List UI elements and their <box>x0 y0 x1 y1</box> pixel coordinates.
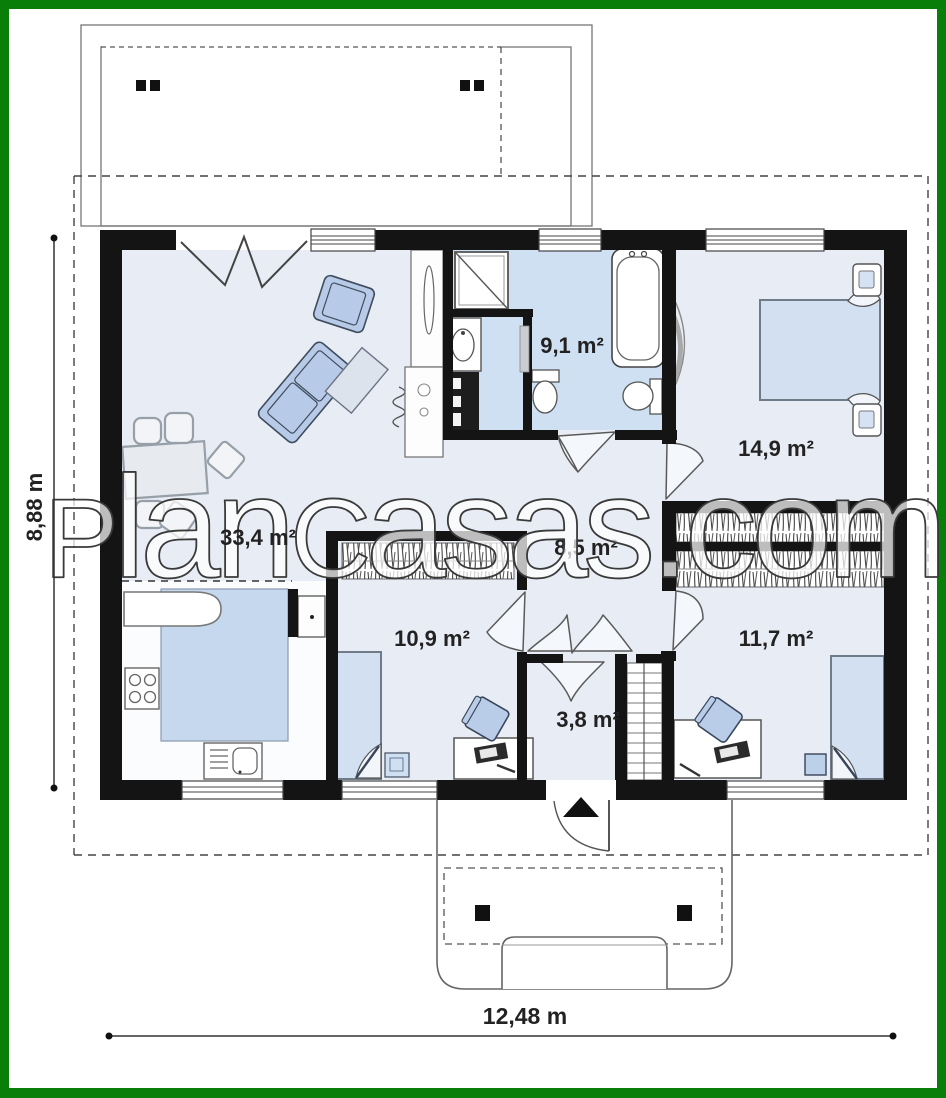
svg-text:PlanCasas.com: PlanCasas.com <box>44 446 942 608</box>
svg-text:3,8 m²: 3,8 m² <box>556 707 620 732</box>
svg-text:11,7 m²: 11,7 m² <box>739 626 814 651</box>
svg-text:33,4 m²: 33,4 m² <box>220 525 296 550</box>
svg-text:9,1 m²: 9,1 m² <box>540 333 604 358</box>
svg-text:8,88 m: 8,88 m <box>22 473 47 542</box>
svg-text:10,9 m²: 10,9 m² <box>394 626 470 651</box>
svg-text:12,48 m: 12,48 m <box>483 1003 567 1029</box>
